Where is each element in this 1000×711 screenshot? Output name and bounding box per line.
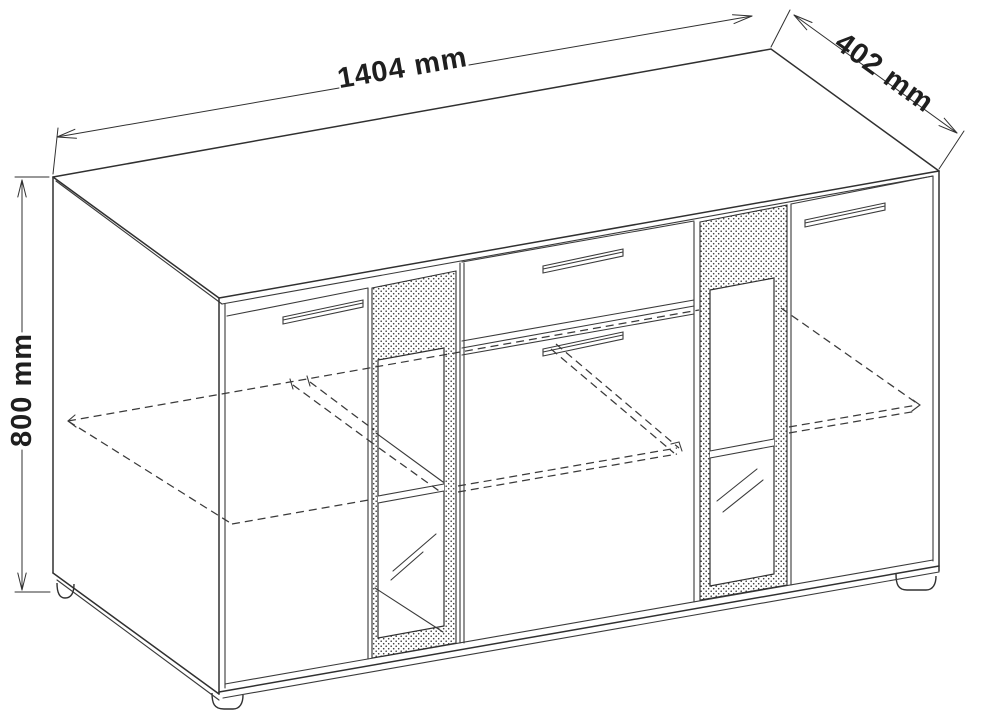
depth-dimension-label: 402 mm: [829, 26, 940, 119]
extension-line: [771, 10, 790, 47]
extension-line: [939, 131, 964, 169]
left-door: [227, 288, 368, 659]
height-dimension-label: 800 mm: [6, 333, 38, 447]
width-dimension-label: 1404 mm: [335, 41, 470, 95]
dimension-depth: 402 mm: [794, 15, 964, 169]
cabinet-top-face: [53, 49, 939, 304]
right-door: [791, 176, 933, 585]
cabinet-feet: [57, 574, 936, 709]
cabinet-front-frame: [219, 171, 939, 698]
shelf-corner-marks: [68, 376, 920, 451]
extension-line: [53, 128, 58, 174]
cabinet-left-side: [53, 177, 225, 700]
hidden-shelf-lines: [68, 308, 920, 524]
right-door-handle: [805, 203, 885, 227]
diagram-canvas: 1404 mm 402 mm 800 mm: [0, 0, 1000, 711]
center-drawer-handle: [543, 249, 623, 273]
right-glass-strip: [700, 205, 787, 600]
left-door-handle: [283, 300, 363, 324]
dimension-width: 1404 mm: [53, 10, 790, 174]
left-glass-strip: [372, 271, 456, 658]
dimension-height: 800 mm: [6, 177, 50, 592]
furniture-dimension-diagram: 1404 mm 402 mm 800 mm: [0, 0, 1000, 711]
center-section: [460, 221, 694, 643]
right-glass-window: [710, 278, 774, 586]
